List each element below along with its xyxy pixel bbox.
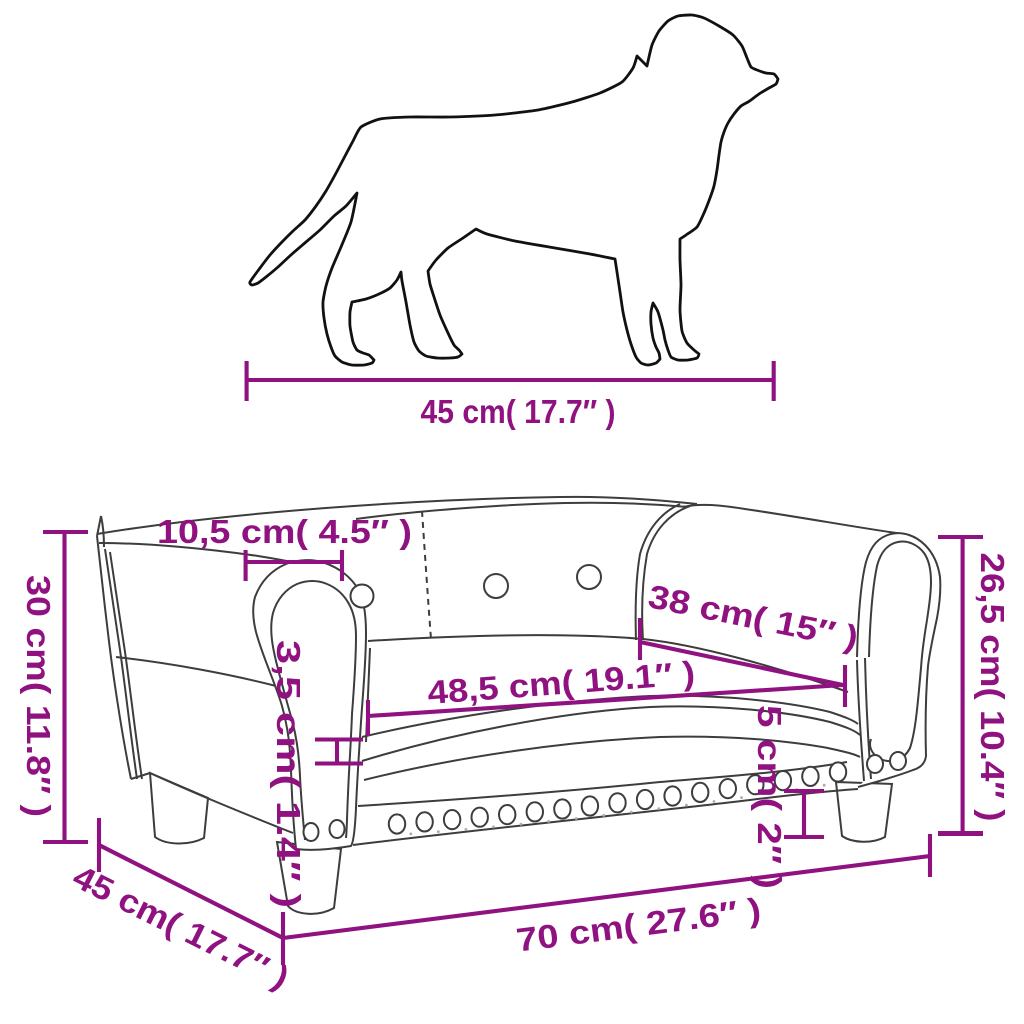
svg-text:5 cm( 2″ ): 5 cm( 2″ ) bbox=[751, 705, 788, 889]
svg-text:70 cm( 27.6″ ): 70 cm( 27.6″ ) bbox=[514, 891, 763, 959]
svg-text:26,5 cm( 10.4″ ): 26,5 cm( 10.4″ ) bbox=[974, 553, 1011, 822]
svg-text:45 cm( 17.7″ ): 45 cm( 17.7″ ) bbox=[421, 393, 616, 430]
svg-text:30 cm( 11.8″ ): 30 cm( 11.8″ ) bbox=[20, 575, 57, 817]
svg-text:10,5 cm( 4.5″ ): 10,5 cm( 4.5″ ) bbox=[157, 513, 412, 550]
svg-text:3,5 cm( 1.4″ ): 3,5 cm( 1.4″ ) bbox=[270, 640, 307, 908]
